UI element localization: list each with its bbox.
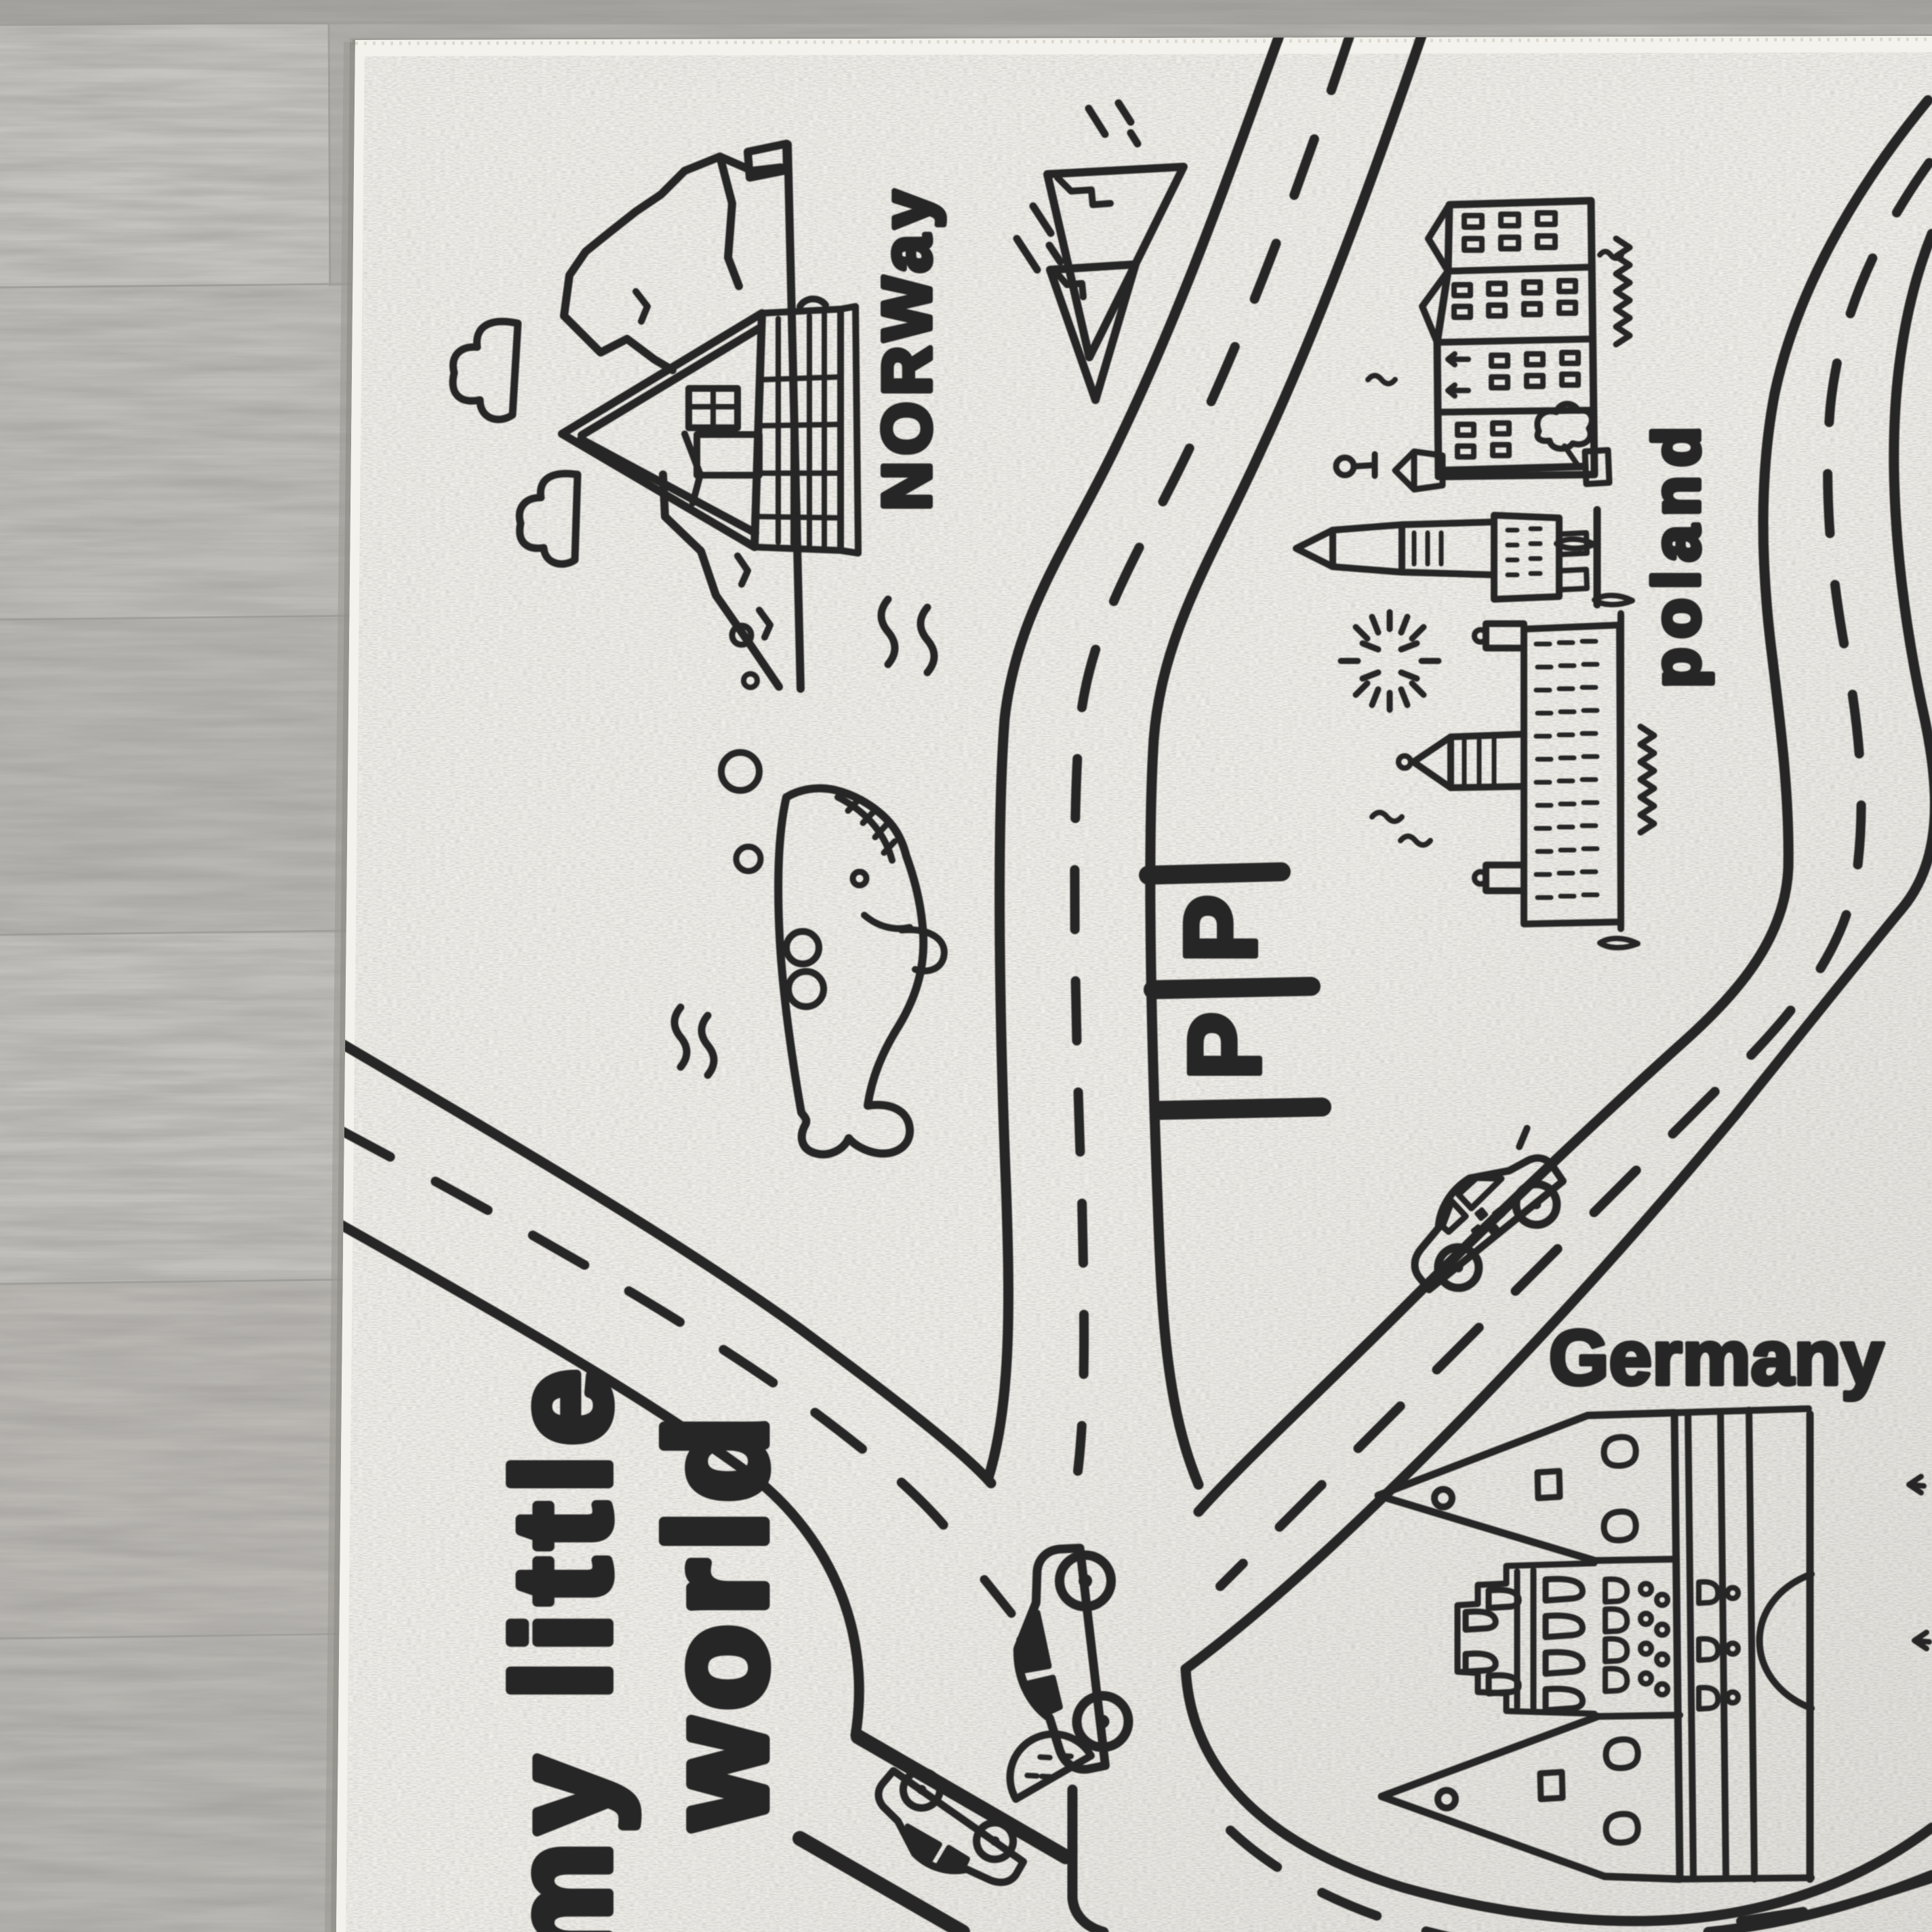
svg-text:poland: poland (1641, 418, 1713, 688)
svg-text:P: P (1167, 1012, 1281, 1080)
svg-text:P: P (1163, 895, 1277, 963)
svg-text:Germany: Germany (1549, 1315, 1884, 1401)
svg-text:my little: my little (487, 1360, 638, 1932)
svg-text:NORWay: NORWay (869, 184, 945, 510)
svg-text:world: world (639, 1407, 794, 1829)
